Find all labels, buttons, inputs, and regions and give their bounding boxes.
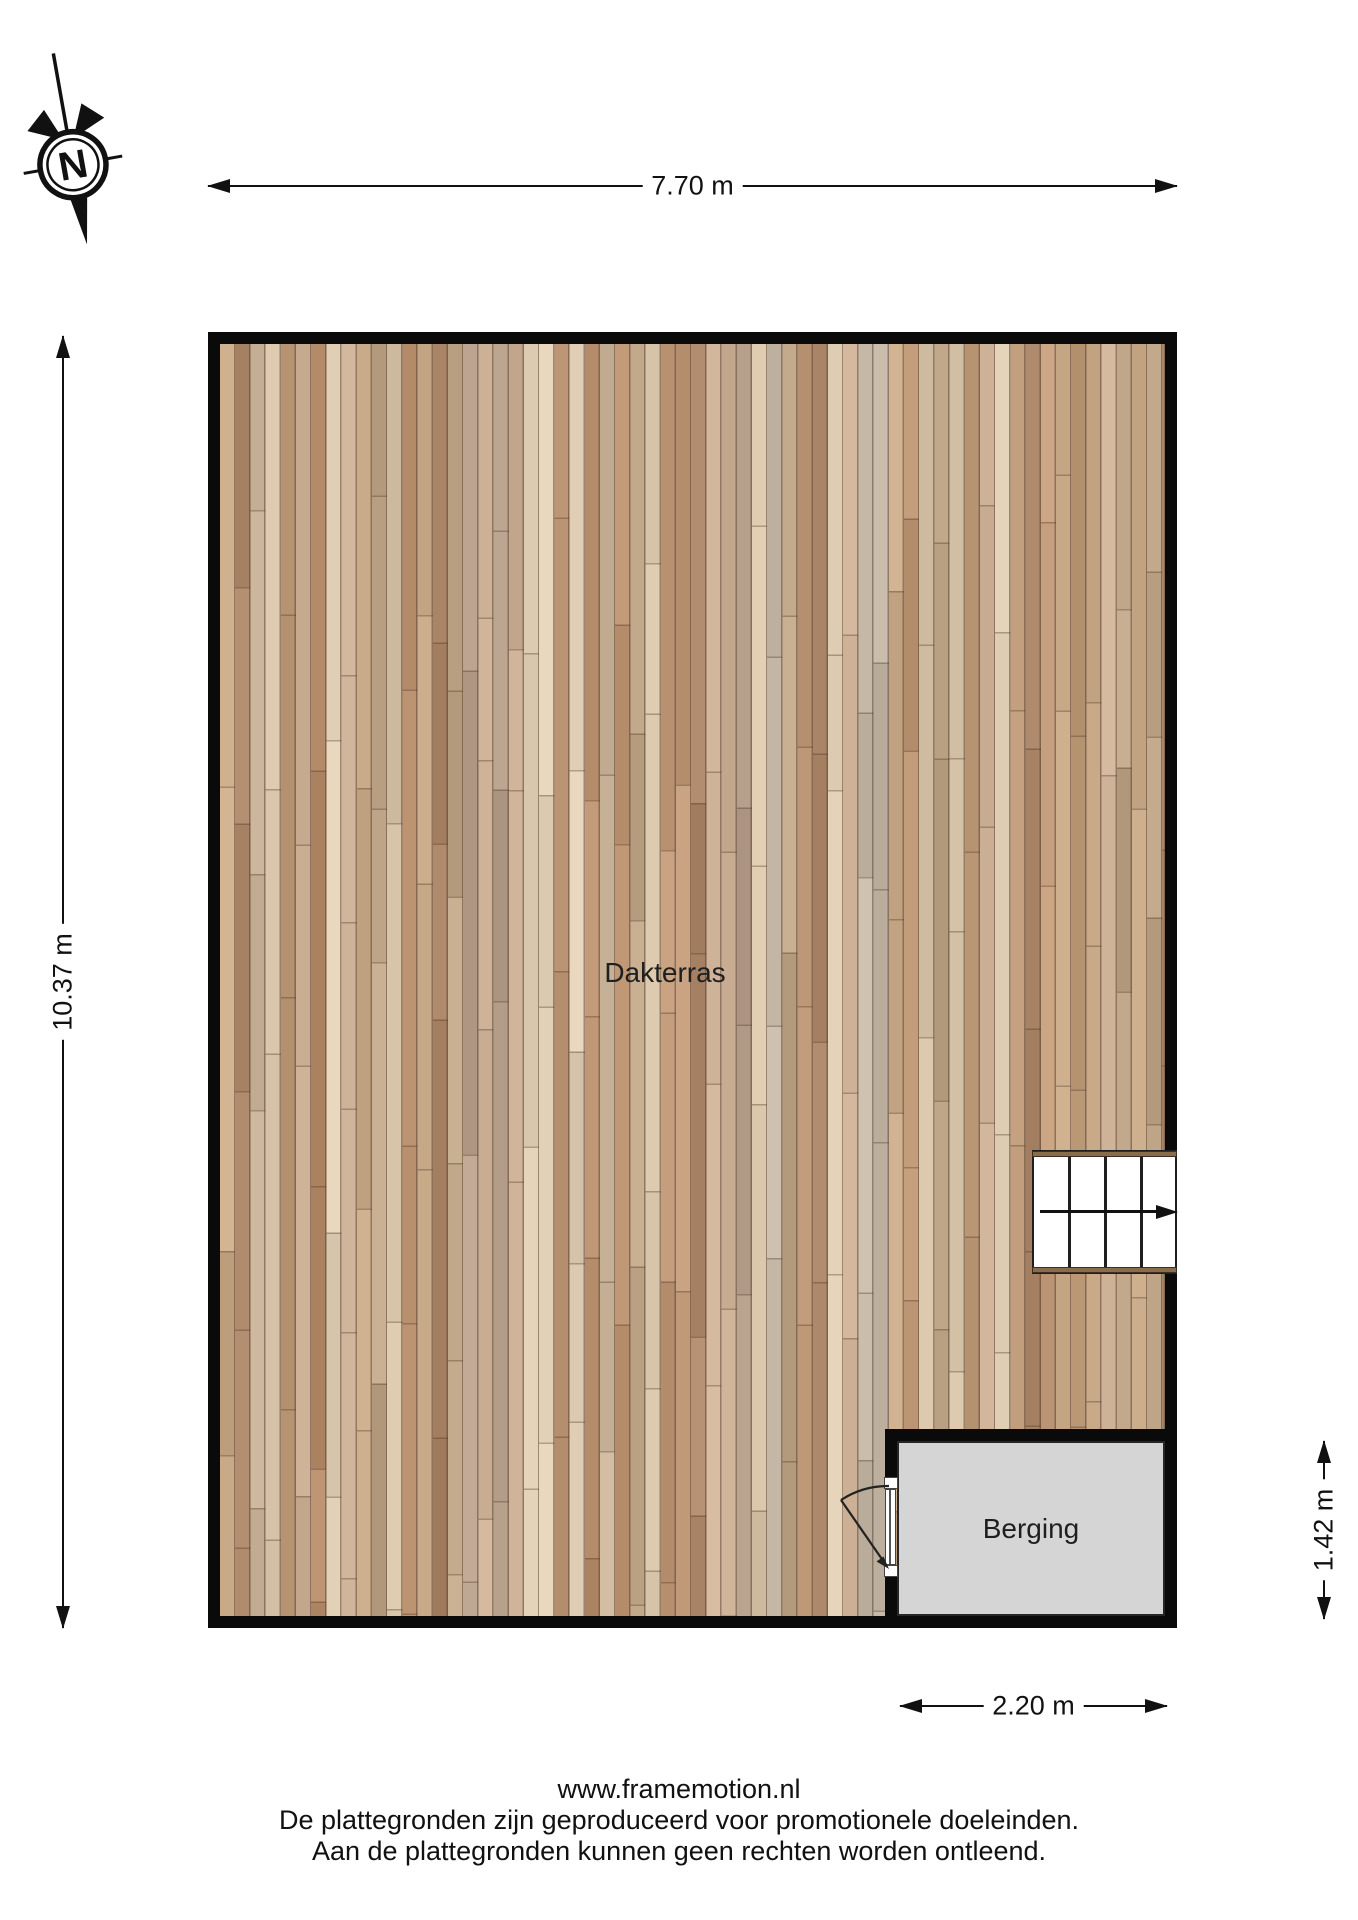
- dimension-storage-width: 2.20 m: [900, 1696, 1167, 1716]
- stair-direction-arrow-icon: [1156, 1205, 1178, 1219]
- room-label-dakterras: Dakterras: [220, 957, 1110, 989]
- stair-direction-line: [1040, 1210, 1162, 1213]
- arrow-down-icon: [1317, 1597, 1331, 1620]
- arrow-right-icon: [1155, 179, 1178, 193]
- door-swing-arc: [825, 1470, 905, 1580]
- stair-edge-bottom: [1032, 1267, 1177, 1273]
- dimension-label: 2.20 m: [983, 1691, 1084, 1722]
- dimension-storage-height: 1.42 m: [1314, 1441, 1334, 1619]
- arrow-left-icon: [207, 179, 230, 193]
- arrow-right-icon: [1145, 1699, 1168, 1713]
- storage-wall-top: [885, 1429, 1177, 1441]
- footer-disclaimer-1: De plattegronden zijn geproduceerd voor …: [0, 1805, 1358, 1836]
- compass-icon: N: [1, 40, 138, 255]
- arrow-left-icon: [899, 1699, 922, 1713]
- room-berging: Berging: [897, 1441, 1165, 1616]
- footer-disclaimer-2: Aan de plattegronden kunnen geen rechten…: [0, 1836, 1358, 1867]
- arrow-down-icon: [56, 1606, 70, 1629]
- dimension-label: 7.70 m: [642, 171, 743, 202]
- room-label-berging: Berging: [983, 1513, 1080, 1545]
- dimension-label: 10.37 m: [48, 924, 79, 1040]
- compass-rose: N: [1, 40, 138, 255]
- floorplan-page: { "compass": { "north_label": "N" }, "di…: [0, 0, 1358, 1920]
- footer: www.framemotion.nl De plattegronden zijn…: [0, 1774, 1358, 1867]
- footer-website: www.framemotion.nl: [0, 1774, 1358, 1805]
- dimension-total-height: 10.37 m: [53, 336, 73, 1628]
- dimension-total-width: 7.70 m: [208, 176, 1177, 196]
- dimension-label: 1.42 m: [1309, 1480, 1340, 1581]
- storage-wall-left-lower: [885, 1577, 897, 1628]
- arrow-up-icon: [56, 335, 70, 358]
- arrow-up-icon: [1317, 1440, 1331, 1463]
